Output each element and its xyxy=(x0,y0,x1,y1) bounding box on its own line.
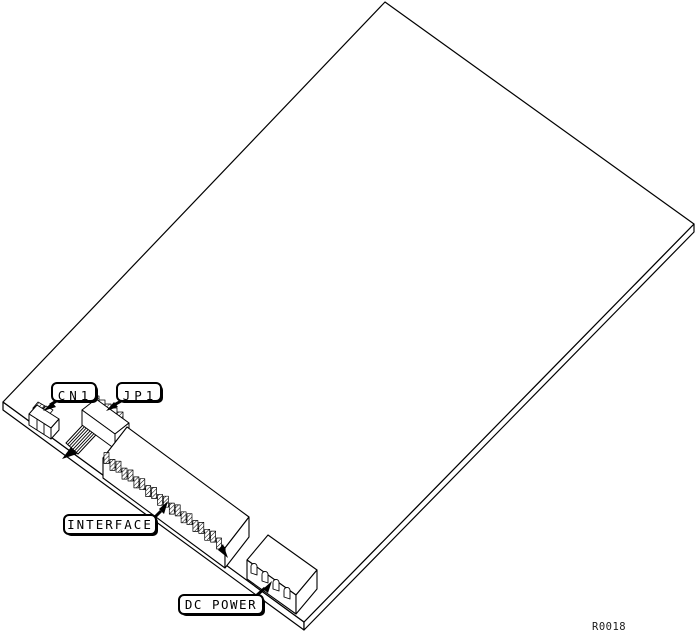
drawing-reference-code: R0018 xyxy=(592,621,626,633)
callout-label-dc-power: DC POWER xyxy=(185,597,257,612)
callout-label-interface: INTERFACE xyxy=(67,517,153,532)
figure-canvas: CN1 JP1 INTERFACE DC POWER R0018 xyxy=(0,0,696,640)
callout-label-cn1: CN1 xyxy=(58,388,93,403)
callout-label-jp1: JP1 xyxy=(123,388,158,403)
board-illustration: CN1 JP1 INTERFACE DC POWER R0018 xyxy=(0,0,696,640)
